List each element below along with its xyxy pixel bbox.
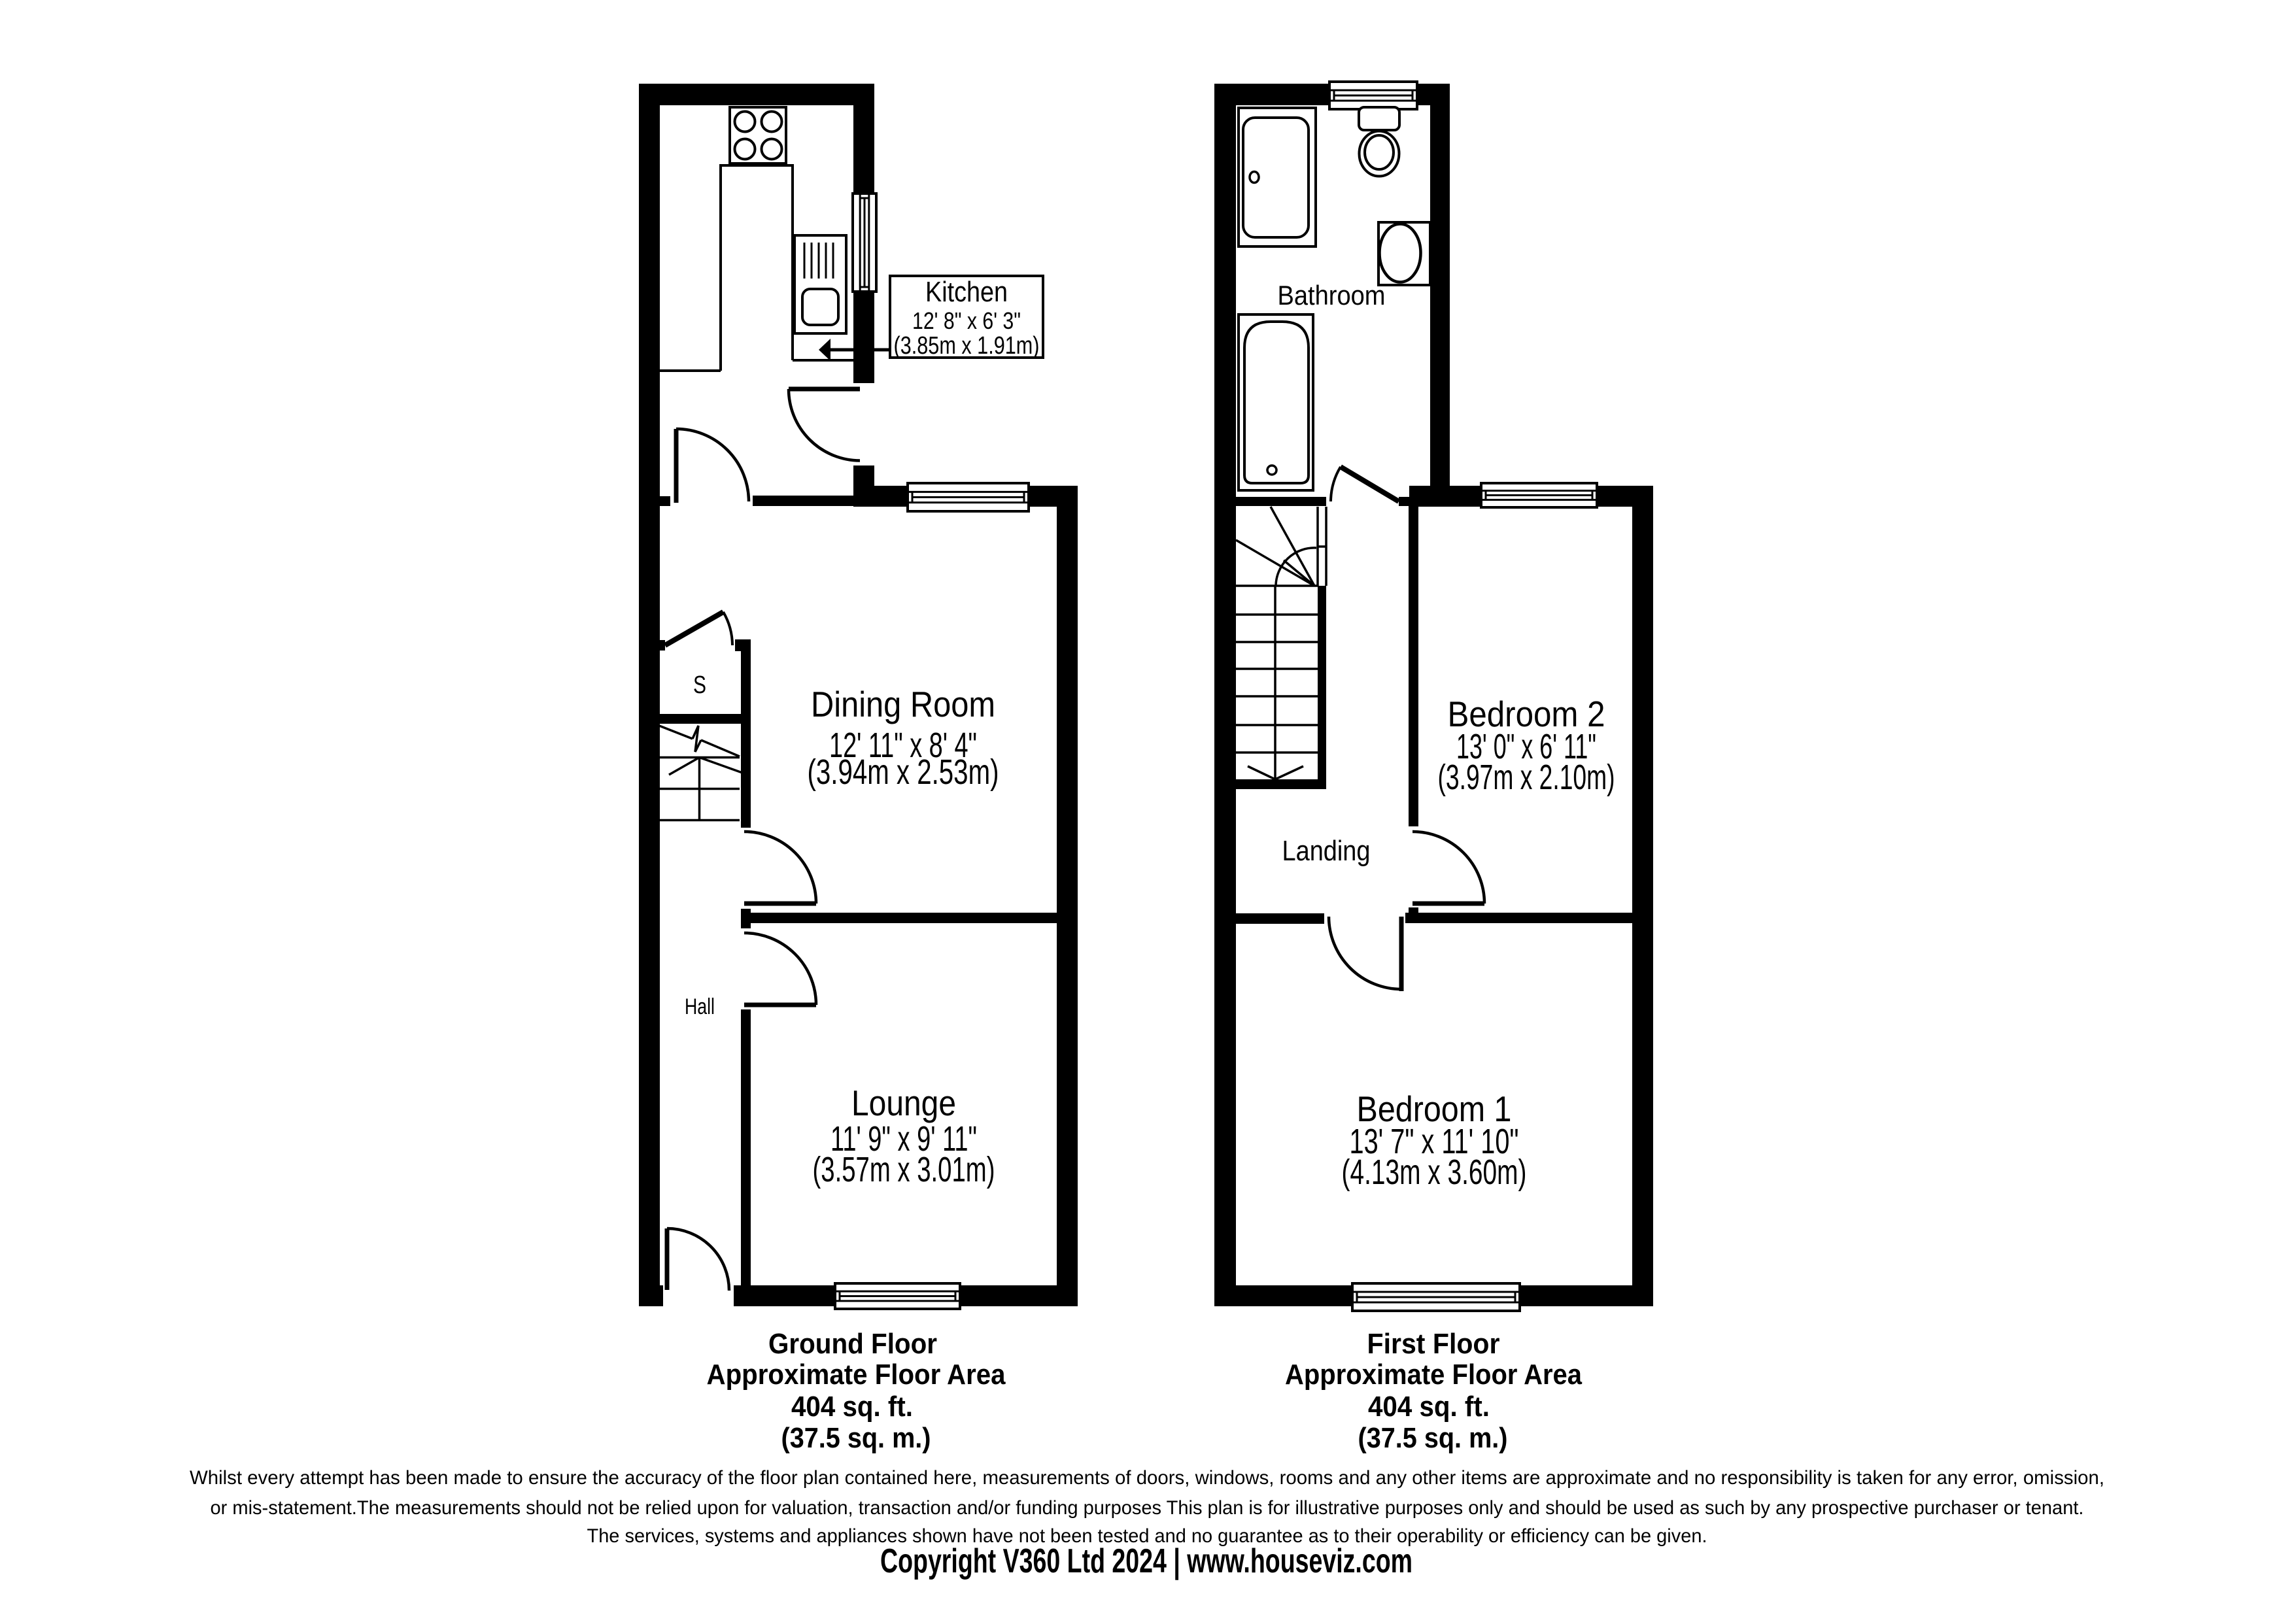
svg-text:(3.57m x 3.01m): (3.57m x 3.01m)	[813, 1150, 995, 1189]
svg-text:Landing: Landing	[1282, 835, 1371, 867]
svg-text:Bathroom: Bathroom	[1278, 280, 1386, 311]
svg-text:S: S	[693, 671, 706, 699]
svg-text:Hall: Hall	[685, 994, 715, 1019]
svg-text:Kitchen: Kitchen	[925, 276, 1008, 308]
svg-text:Approximate Floor Area: Approximate Floor Area	[1285, 1359, 1582, 1391]
svg-text:or mis-statement.The measureme: or mis-statement.The measurements should…	[211, 1497, 2084, 1519]
svg-text:Whilst every attempt has been: Whilst every attempt has been made to en…	[190, 1467, 2104, 1489]
svg-text:Dining Room: Dining Room	[811, 684, 995, 724]
svg-text:(37.5 sq. m.): (37.5 sq. m.)	[1358, 1422, 1508, 1454]
svg-text:(37.5 sq. m.): (37.5 sq. m.)	[781, 1422, 931, 1454]
svg-text:Lounge: Lounge	[851, 1083, 956, 1123]
svg-text:First Floor: First Floor	[1367, 1328, 1500, 1360]
svg-text:(3.97m x 2.10m): (3.97m x 2.10m)	[1438, 758, 1615, 797]
svg-text:12' 8" x 6' 3": 12' 8" x 6' 3"	[912, 307, 1021, 334]
svg-text:(3.94m x 2.53m): (3.94m x 2.53m)	[808, 753, 999, 792]
svg-text:Approximate Floor Area: Approximate Floor Area	[707, 1359, 1006, 1391]
svg-text:(3.85m x 1.91m): (3.85m x 1.91m)	[894, 332, 1040, 360]
svg-text:(4.13m x 3.60m): (4.13m x 3.60m)	[1342, 1153, 1527, 1192]
svg-text:Ground Floor: Ground Floor	[768, 1328, 937, 1360]
svg-text:Copyright V360 Ltd 2024 | www.: Copyright V360 Ltd 2024 | www.houseviz.c…	[880, 1542, 1412, 1580]
svg-text:404 sq. ft.: 404 sq. ft.	[1368, 1391, 1490, 1423]
svg-text:404 sq. ft.: 404 sq. ft.	[791, 1391, 913, 1423]
